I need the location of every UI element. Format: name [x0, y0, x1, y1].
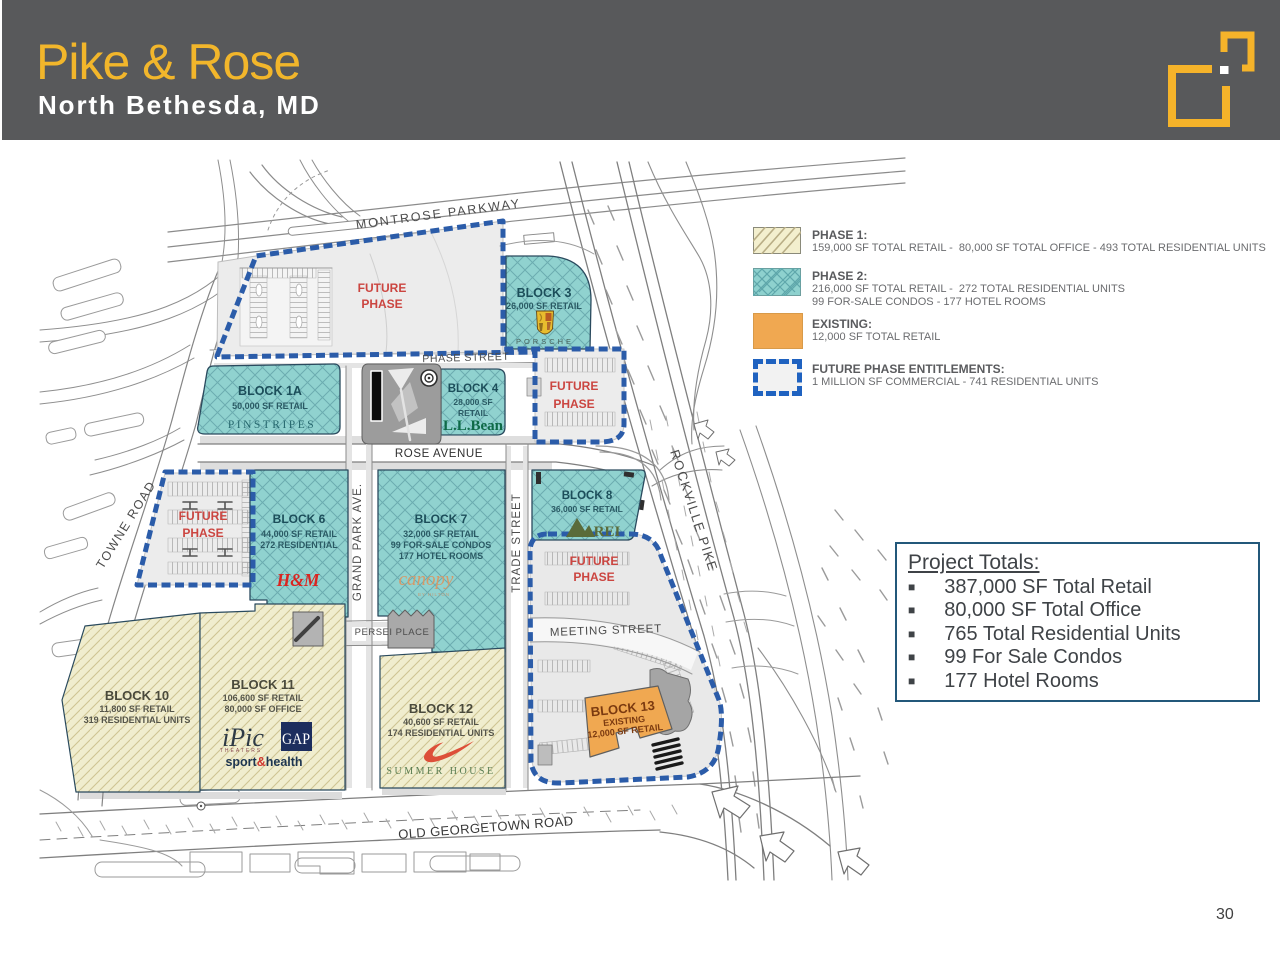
svg-text:BLOCK 7: BLOCK 7	[415, 512, 468, 526]
svg-text:174 RESIDENTIAL UNITS: 174 RESIDENTIAL UNITS	[388, 728, 495, 738]
svg-text:272 RESIDENTIAL: 272 RESIDENTIAL	[260, 540, 338, 550]
svg-text:177 HOTEL ROOMS: 177 HOTEL ROOMS	[399, 551, 483, 561]
svg-text:319 RESIDENTIAL UNITS: 319 RESIDENTIAL UNITS	[84, 715, 191, 725]
svg-text:BLOCK 6: BLOCK 6	[273, 512, 326, 526]
svg-text:BLOCK 3: BLOCK 3	[517, 286, 572, 300]
svg-text:28,000 SF: 28,000 SF	[453, 397, 492, 407]
svg-text:ROSE AVENUE: ROSE AVENUE	[395, 448, 483, 460]
svg-text:OLD GEORGETOWN ROAD: OLD GEORGETOWN ROAD	[398, 813, 574, 842]
svg-text:PHASE STREET: PHASE STREET	[422, 351, 509, 365]
svg-text:99 FOR-SALE CONDOS: 99 FOR-SALE CONDOS	[391, 540, 492, 550]
svg-text:44,000 SF RETAIL: 44,000 SF RETAIL	[261, 529, 337, 539]
svg-text:canopy: canopy	[399, 569, 454, 590]
svg-text:BLOCK 12: BLOCK 12	[409, 701, 473, 716]
svg-text:PINSTRIPES: PINSTRIPES	[228, 419, 316, 431]
svg-text:PHASE: PHASE	[573, 570, 614, 584]
svg-text:PORSCHE: PORSCHE	[516, 337, 574, 346]
svg-text:PERSEI PLACE: PERSEI PLACE	[355, 627, 430, 638]
svg-text:FUTURE: FUTURE	[570, 554, 619, 568]
svg-text:BLOCK 1A: BLOCK 1A	[238, 384, 302, 398]
svg-text:BLOCK 10: BLOCK 10	[105, 688, 169, 703]
svg-text:FUTURE: FUTURE	[550, 379, 599, 393]
svg-text:PHASE: PHASE	[553, 397, 594, 411]
svg-text:36,000 SF RETAIL: 36,000 SF RETAIL	[551, 504, 623, 514]
svg-text:40,600 SF RETAIL: 40,600 SF RETAIL	[403, 717, 479, 727]
svg-text:FUTURE: FUTURE	[179, 509, 228, 523]
svg-text:BLOCK 8: BLOCK 8	[562, 490, 613, 502]
svg-text:H&M: H&M	[276, 570, 321, 590]
svg-text:sport&health: sport&health	[225, 755, 302, 769]
svg-text:BY HILTON: BY HILTON	[418, 592, 450, 597]
svg-text:GAP: GAP	[282, 731, 310, 748]
svg-text:106,600 SF RETAIL: 106,600 SF RETAIL	[223, 693, 304, 703]
svg-text:PHASE: PHASE	[182, 526, 223, 540]
svg-text:BLOCK 11: BLOCK 11	[231, 677, 295, 692]
svg-text:BLOCK 4: BLOCK 4	[448, 383, 499, 395]
svg-text:REI: REI	[594, 524, 621, 540]
svg-text:TRADE STREET: TRADE STREET	[511, 493, 523, 593]
svg-text:L.L.Bean: L.L.Bean	[443, 418, 504, 434]
svg-text:GRAND PARK AVE.: GRAND PARK AVE.	[352, 483, 364, 601]
svg-text:50,000 SF RETAIL: 50,000 SF RETAIL	[232, 401, 308, 411]
svg-text:80,000 SF OFFICE: 80,000 SF OFFICE	[224, 704, 301, 714]
svg-text:PHASE: PHASE	[361, 297, 402, 311]
svg-text:26,000 SF RETAIL: 26,000 SF RETAIL	[506, 301, 582, 311]
svg-text:SUMMER HOUSE: SUMMER HOUSE	[386, 766, 495, 777]
svg-text:32,000 SF RETAIL: 32,000 SF RETAIL	[403, 529, 479, 539]
svg-text:THEATERS: THEATERS	[220, 748, 262, 754]
svg-text:11,800 SF RETAIL: 11,800 SF RETAIL	[99, 704, 175, 714]
svg-text:RETAIL: RETAIL	[458, 408, 488, 418]
svg-text:FUTURE: FUTURE	[358, 281, 407, 295]
